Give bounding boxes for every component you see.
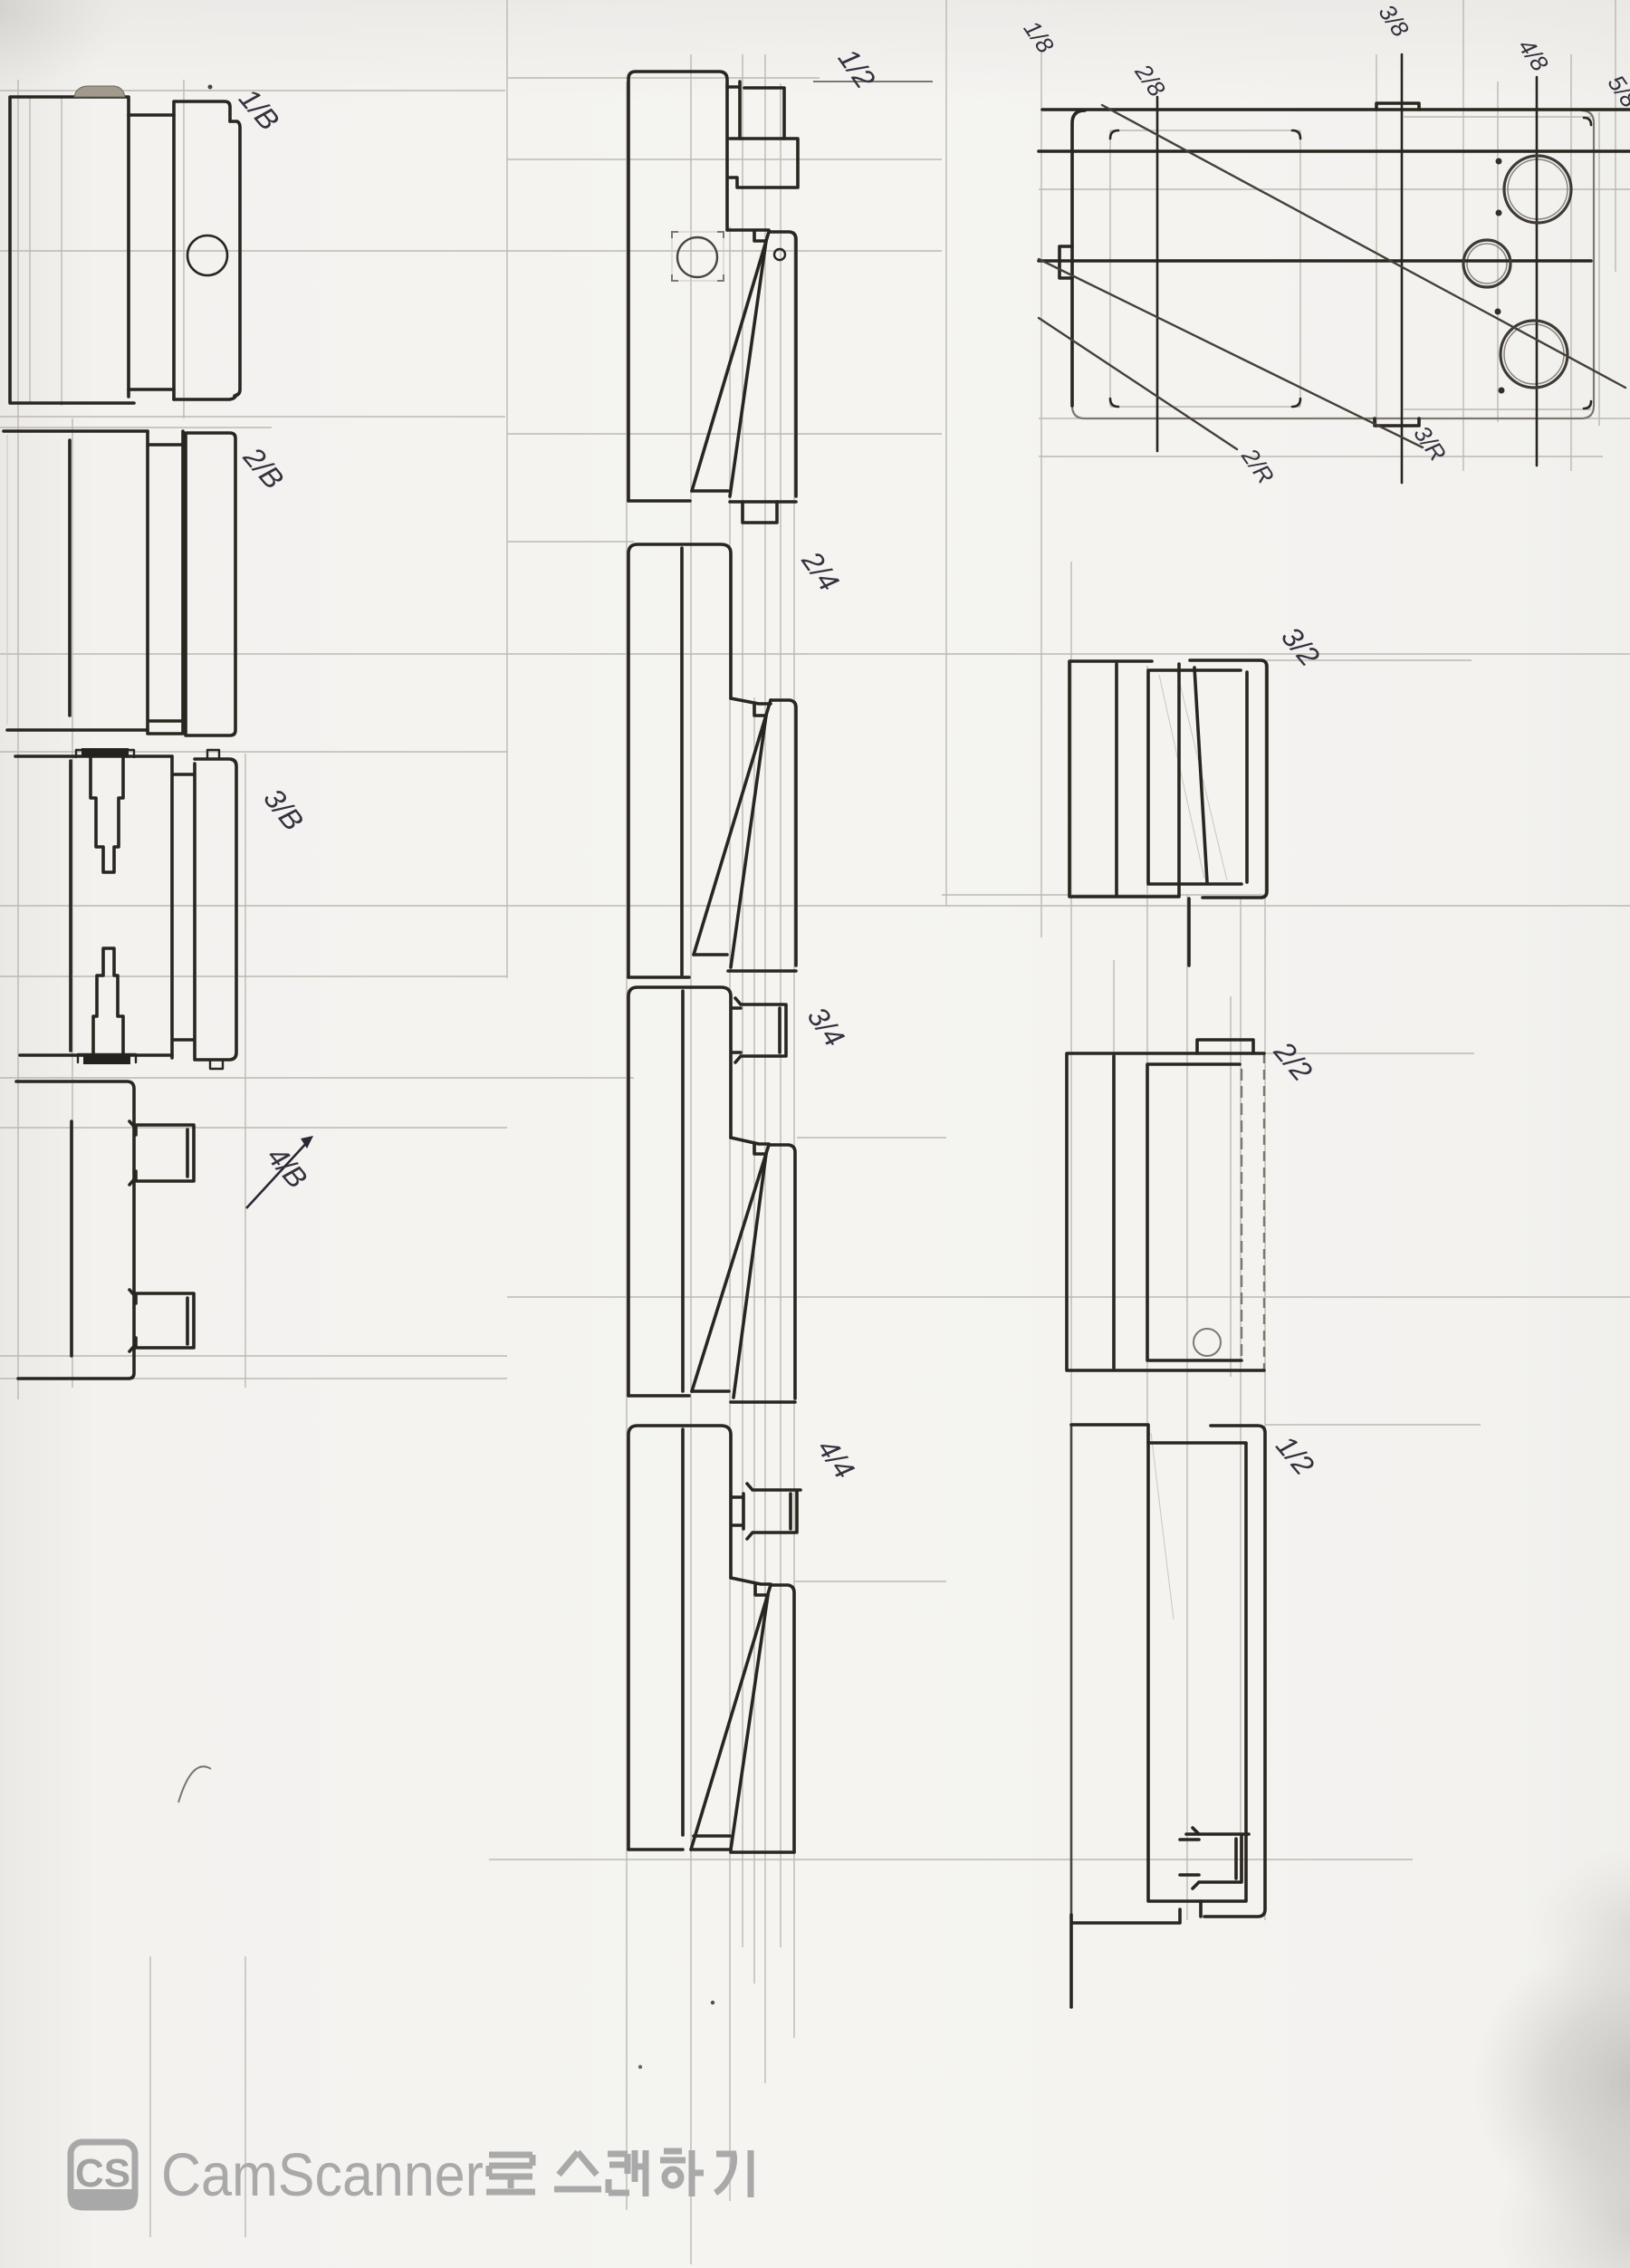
svg-text:CamScanner: CamScanner — [161, 2141, 484, 2209]
svg-text:CS: CS — [75, 2151, 130, 2196]
